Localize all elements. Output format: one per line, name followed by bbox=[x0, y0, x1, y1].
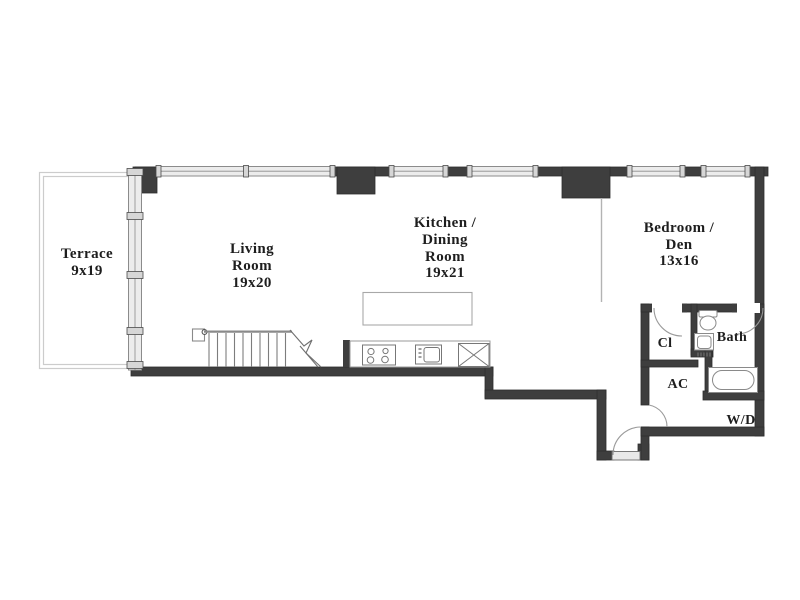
svg-text:Dining: Dining bbox=[422, 232, 468, 248]
wall-pier-2 bbox=[562, 167, 610, 198]
room-label-bedroom-den: Bedroom / Den 13x16 bbox=[644, 220, 715, 269]
room-label-closet: Cl bbox=[658, 336, 673, 351]
room-label-terrace: Terrace 9x19 bbox=[61, 246, 113, 279]
room-label-ac: AC bbox=[667, 377, 688, 392]
wall-bottom-kitchen-lower bbox=[485, 390, 606, 399]
wall-step-vertical-2 bbox=[597, 390, 606, 460]
floor-plan-page: Terrace 9x19 Living Room 19x20 Kitchen /… bbox=[0, 0, 800, 600]
svg-text:Kitchen /: Kitchen / bbox=[414, 215, 477, 231]
kitchen-island bbox=[363, 293, 472, 326]
wall-bottom-right bbox=[641, 427, 764, 436]
toilet bbox=[699, 311, 717, 331]
left-window-wall bbox=[127, 169, 143, 371]
counter-end-pier bbox=[343, 340, 350, 367]
staircase bbox=[193, 329, 322, 367]
room-label-living-room: Living Room 19x20 bbox=[230, 241, 274, 291]
svg-text:Room: Room bbox=[232, 258, 272, 274]
svg-text:13x16: 13x16 bbox=[659, 253, 699, 269]
wall-pier-1 bbox=[337, 167, 375, 194]
wall-vestibule-bottom bbox=[597, 451, 614, 460]
entry-threshold bbox=[612, 452, 640, 461]
room-label-kitchen-dining: Kitchen / Dining Room 19x21 bbox=[414, 215, 477, 281]
svg-text:Living: Living bbox=[230, 241, 274, 257]
svg-text:Den: Den bbox=[665, 237, 692, 253]
wall-bottom-living bbox=[131, 367, 493, 376]
bath-door-opening bbox=[737, 303, 760, 313]
svg-text:Room: Room bbox=[425, 249, 465, 265]
svg-text:Terrace: Terrace bbox=[61, 246, 113, 262]
floor-plan-canvas: Terrace 9x19 Living Room 19x20 Kitchen /… bbox=[0, 0, 800, 600]
stair-break-line bbox=[290, 330, 321, 367]
kitchen-sink bbox=[416, 345, 442, 364]
kitchen-fixtures bbox=[343, 293, 490, 368]
wall-closet-left bbox=[641, 304, 649, 405]
ac-door-swing bbox=[649, 405, 667, 427]
svg-text:19x20: 19x20 bbox=[232, 275, 272, 291]
closet-door-opening bbox=[652, 303, 682, 313]
appliance-x-box bbox=[459, 344, 490, 367]
stair-break-line-2 bbox=[300, 346, 318, 367]
room-label-washer-dryer: W/D bbox=[726, 413, 755, 428]
range bbox=[363, 345, 396, 365]
svg-text:9x19: 9x19 bbox=[71, 263, 103, 279]
svg-text:Bedroom /: Bedroom / bbox=[644, 220, 715, 236]
entry-door-swing bbox=[613, 427, 641, 455]
room-label-bath: Bath bbox=[717, 330, 747, 345]
svg-text:19x21: 19x21 bbox=[425, 265, 465, 281]
bathtub bbox=[709, 368, 758, 393]
wall-closet-bottom bbox=[641, 360, 698, 367]
